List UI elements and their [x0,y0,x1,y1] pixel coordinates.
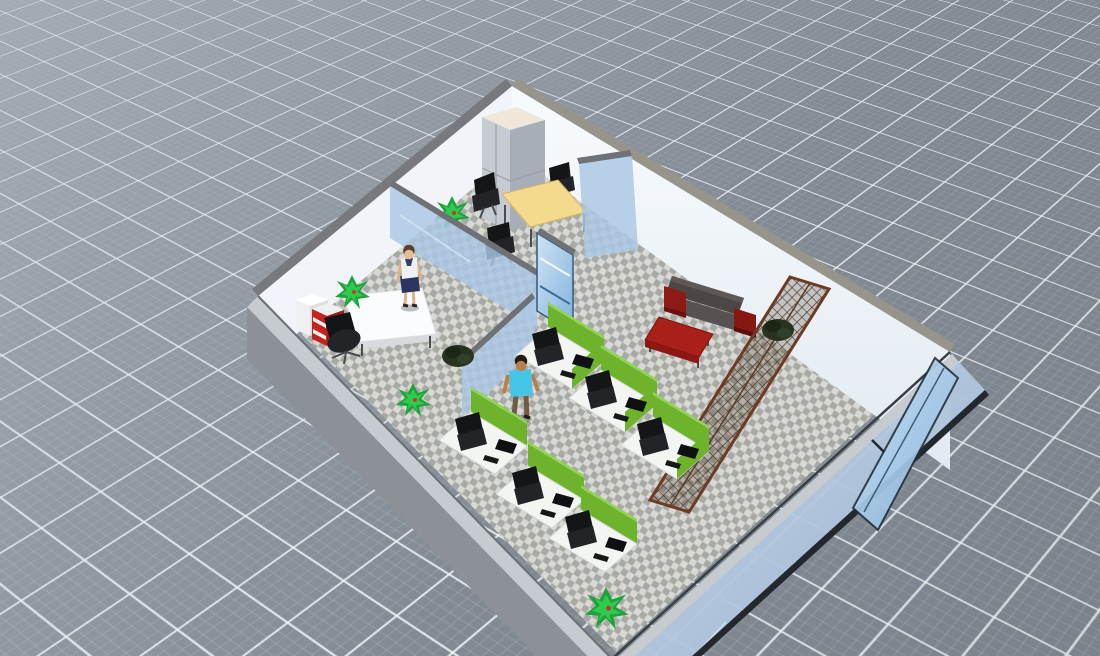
dark-plant-small-office[interactable] [442,345,474,367]
office-model[interactable] [0,0,1100,656]
3d-viewport[interactable] [0,0,1100,656]
glass-partition-meeting-right[interactable] [577,150,638,258]
plant-trellis[interactable] [762,319,794,341]
